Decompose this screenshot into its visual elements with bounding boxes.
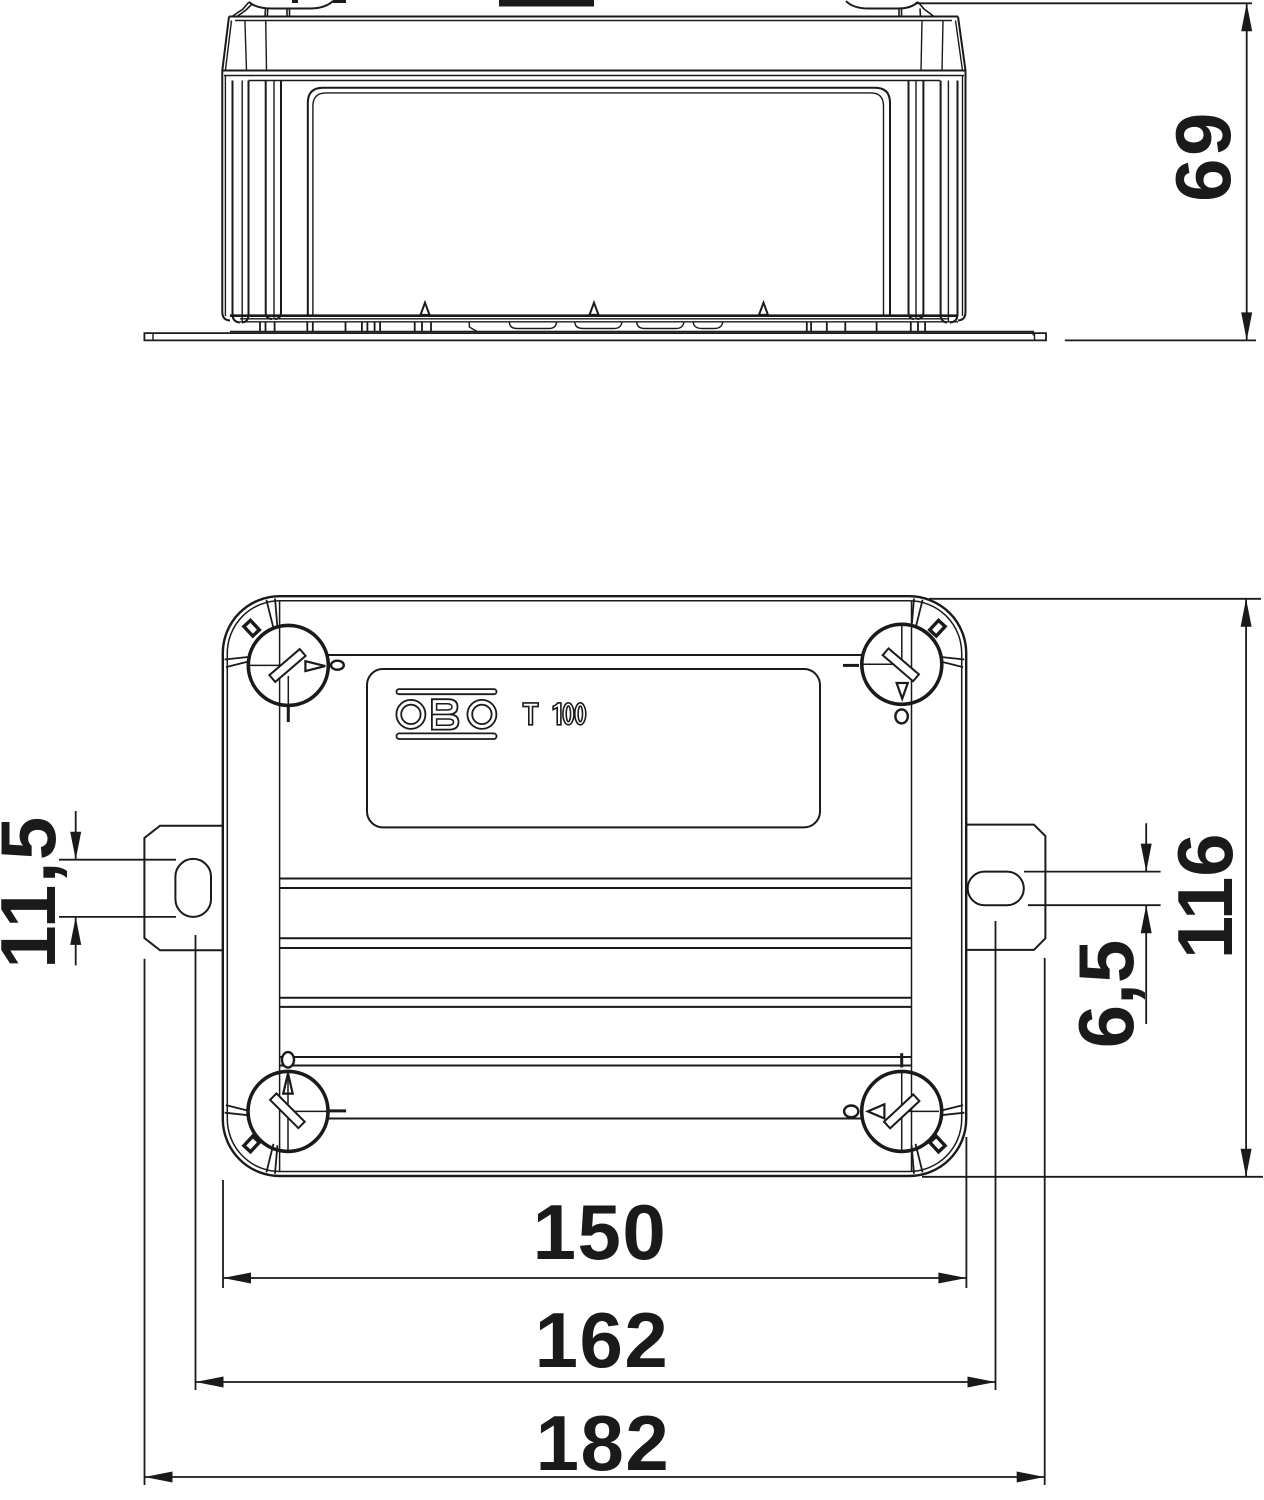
svg-text:69: 69	[1159, 110, 1247, 202]
svg-text:11,5: 11,5	[0, 815, 72, 969]
svg-text:116: 116	[1161, 833, 1249, 959]
svg-text:182: 182	[536, 1399, 671, 1487]
svg-text:150: 150	[533, 1188, 668, 1276]
svg-text:162: 162	[535, 1296, 670, 1384]
svg-text:6,5: 6,5	[1062, 940, 1150, 1048]
